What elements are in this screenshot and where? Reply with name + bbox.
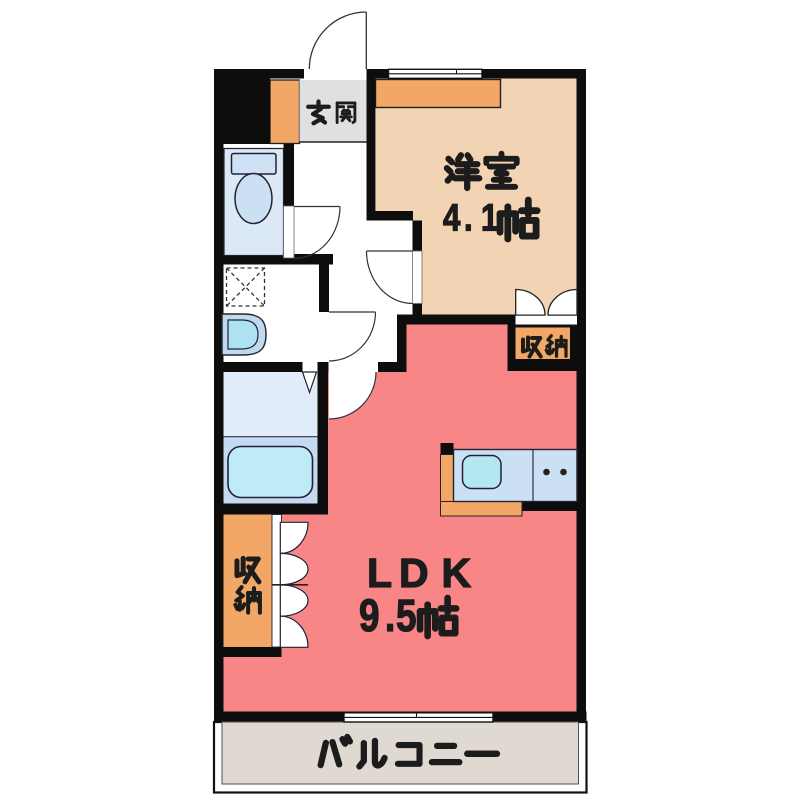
svg-text:L: L <box>367 550 392 596</box>
svg-text:.: . <box>385 591 395 641</box>
svg-text:5: 5 <box>396 591 417 641</box>
svg-text:D: D <box>399 550 429 596</box>
svg-text:4: 4 <box>443 198 461 240</box>
svg-text:K: K <box>442 550 472 596</box>
svg-text:9: 9 <box>359 591 380 641</box>
svg-text:1: 1 <box>481 198 498 240</box>
svg-text:.: . <box>464 198 473 240</box>
